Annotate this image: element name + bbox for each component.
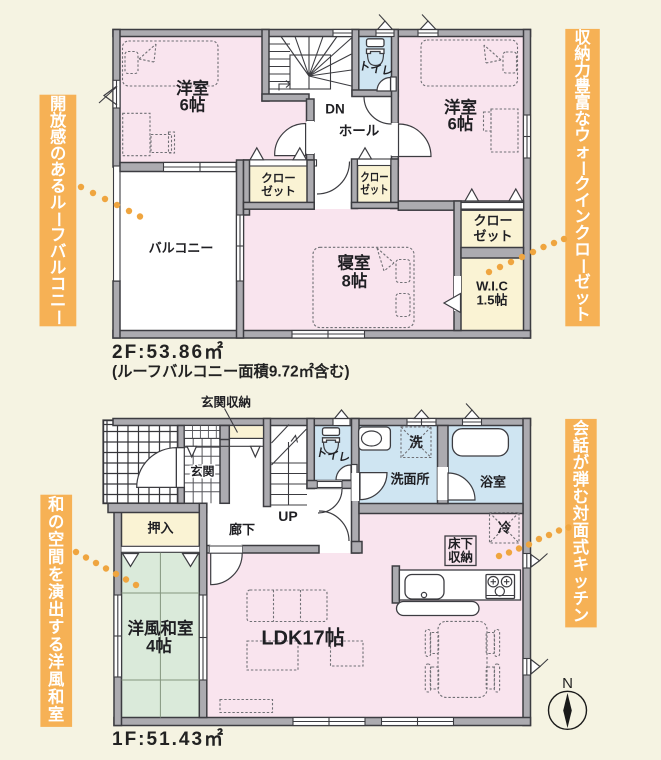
svg-text:W.I.C: W.I.C	[476, 279, 508, 294]
svg-text:浴室: 浴室	[480, 475, 506, 490]
svg-text:1F:51.43㎡: 1F:51.43㎡	[112, 727, 225, 750]
svg-text:会: 会	[573, 419, 590, 438]
svg-text:押入: 押入	[147, 521, 173, 536]
svg-text:(ルーフバルコニー面積9.72㎡含む): (ルーフバルコニー面積9.72㎡含む)	[112, 363, 350, 381]
svg-text:ン: ン	[574, 208, 590, 226]
svg-text:ン: ン	[573, 607, 589, 625]
svg-text:の: の	[50, 145, 66, 163]
svg-text:す: す	[48, 619, 64, 637]
svg-text:ッ: ッ	[574, 290, 590, 308]
svg-text:フ: フ	[50, 227, 66, 245]
svg-text:間: 間	[48, 549, 64, 567]
svg-text:ク: ク	[574, 225, 590, 243]
svg-text:バルコニー: バルコニー	[149, 241, 214, 256]
svg-text:ゼット: ゼット	[261, 184, 296, 198]
svg-text:豊: 豊	[574, 77, 590, 96]
svg-text:ー: ー	[574, 160, 592, 176]
svg-text:ウ: ウ	[574, 127, 590, 145]
svg-text:室: 室	[48, 705, 64, 724]
svg-text:放: 放	[49, 111, 67, 130]
svg-text:を: を	[48, 566, 64, 584]
svg-text:和: 和	[48, 495, 64, 514]
svg-text:ッ: ッ	[573, 573, 589, 591]
svg-text:ル: ル	[50, 194, 66, 212]
svg-text:4帖: 4帖	[146, 636, 172, 656]
svg-text:ー: ー	[49, 211, 67, 227]
svg-text:収: 収	[574, 29, 591, 47]
svg-text:床下: 床下	[448, 536, 474, 551]
svg-text:洋風和室: 洋風和室	[128, 618, 194, 638]
svg-text:N: N	[562, 675, 573, 692]
svg-text:コ: コ	[50, 276, 66, 294]
svg-text:クロー: クロー	[360, 171, 388, 184]
svg-text:クロー: クロー	[261, 172, 296, 185]
svg-text:話: 話	[573, 436, 589, 455]
svg-text:ー: ー	[574, 258, 592, 274]
svg-text:る: る	[48, 636, 64, 654]
svg-text:出: 出	[48, 600, 64, 619]
svg-text:バ: バ	[50, 243, 67, 261]
svg-text:ゼット: ゼット	[473, 229, 512, 244]
svg-text:洋室: 洋室	[444, 97, 477, 117]
svg-text:2F:53.86㎡: 2F:53.86㎡	[112, 340, 225, 363]
svg-text:ル: ル	[50, 259, 66, 277]
svg-text:ゼット: ゼット	[360, 183, 388, 197]
svg-text:あ: あ	[50, 161, 66, 179]
svg-text:洋: 洋	[48, 653, 64, 672]
svg-text:開: 開	[50, 96, 66, 114]
svg-text:面: 面	[573, 522, 589, 540]
svg-text:洗: 洗	[409, 434, 423, 450]
svg-text:対: 対	[572, 504, 589, 523]
svg-text:DN: DN	[325, 102, 345, 117]
svg-text:洋室: 洋室	[176, 78, 209, 98]
svg-text:6帖: 6帖	[180, 95, 206, 115]
svg-text:イ: イ	[574, 192, 590, 210]
svg-text:る: る	[50, 177, 66, 195]
svg-text:風: 風	[48, 671, 65, 689]
svg-text:む: む	[573, 488, 589, 506]
svg-text:玄関: 玄関	[190, 464, 214, 479]
svg-text:UP: UP	[278, 508, 297, 524]
svg-text:が: が	[573, 453, 590, 472]
svg-text:和: 和	[48, 688, 64, 707]
svg-text:納: 納	[574, 44, 590, 63]
svg-text:ー: ー	[49, 309, 67, 325]
svg-text:ロ: ロ	[574, 241, 590, 259]
svg-text:の: の	[48, 514, 64, 532]
svg-text:クロー: クロー	[473, 213, 512, 228]
svg-text:空: 空	[48, 530, 64, 549]
svg-text:キ: キ	[573, 556, 589, 574]
svg-text:収納: 収納	[448, 550, 473, 565]
svg-text:洗面所: 洗面所	[390, 472, 429, 487]
svg-text:ォ: ォ	[574, 143, 590, 161]
svg-text:感: 感	[50, 127, 66, 146]
svg-text:1.5帖: 1.5帖	[476, 293, 507, 308]
svg-text:力: 力	[574, 61, 590, 80]
svg-text:玄関収納: 玄関収納	[201, 395, 251, 410]
svg-text:ク: ク	[574, 176, 590, 194]
svg-text:6帖: 6帖	[448, 114, 474, 134]
svg-text:富: 富	[574, 93, 590, 112]
svg-text:廊下: 廊下	[229, 522, 255, 537]
svg-text:演: 演	[48, 583, 64, 602]
svg-text:チ: チ	[573, 590, 589, 608]
svg-text:寝室: 寝室	[338, 253, 371, 273]
svg-text:冷: 冷	[498, 520, 512, 536]
svg-text:式: 式	[573, 538, 590, 557]
svg-text:ト: ト	[574, 306, 590, 324]
svg-text:LDK17帖: LDK17帖	[261, 627, 344, 650]
svg-text:弾: 弾	[573, 470, 589, 489]
svg-text:8帖: 8帖	[342, 271, 368, 291]
svg-text:ゼ: ゼ	[574, 272, 590, 291]
svg-text:ホール: ホール	[339, 124, 380, 139]
svg-text:ニ: ニ	[50, 292, 66, 310]
svg-text:な: な	[574, 110, 590, 128]
